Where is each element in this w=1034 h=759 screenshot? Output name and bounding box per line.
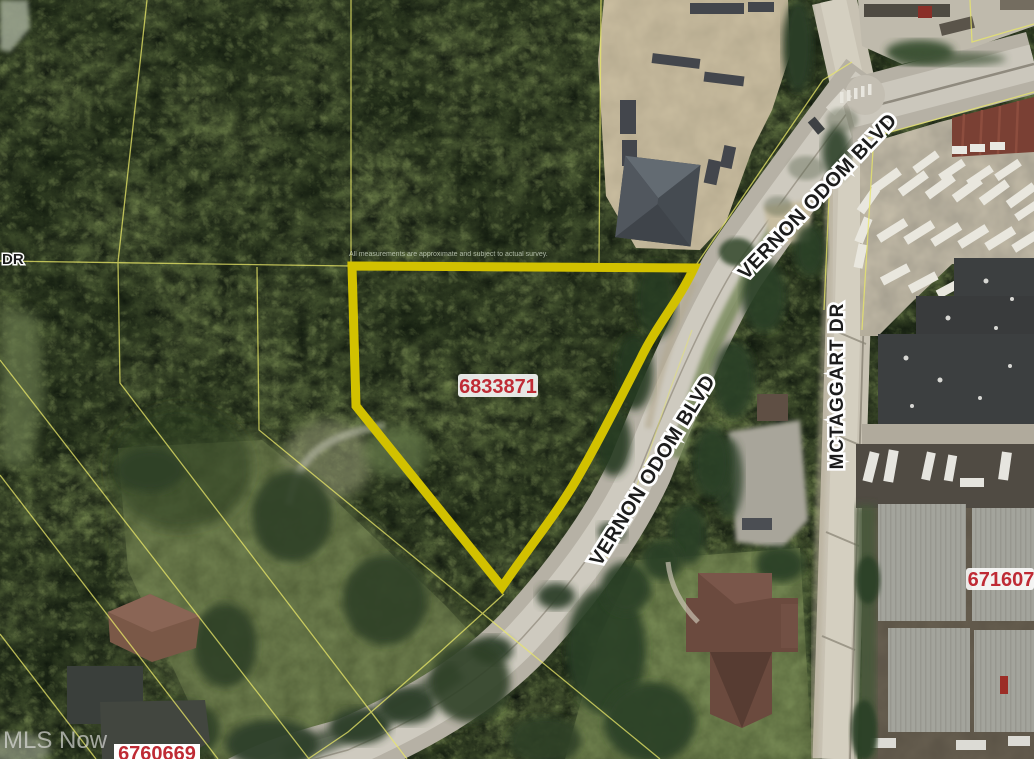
svg-text:671607: 671607 <box>968 569 1034 591</box>
svg-text:6760669: 6760669 <box>118 743 196 759</box>
svg-text:6833871: 6833871 <box>459 376 537 398</box>
svg-text:MLS Now: MLS Now <box>3 727 108 754</box>
svg-text:All measurements are approxima: All measurements are approximate and sub… <box>349 251 548 258</box>
svg-text:MCTAGGART DR: MCTAGGART DR <box>827 303 848 470</box>
svg-text:DR: DR <box>2 251 24 268</box>
